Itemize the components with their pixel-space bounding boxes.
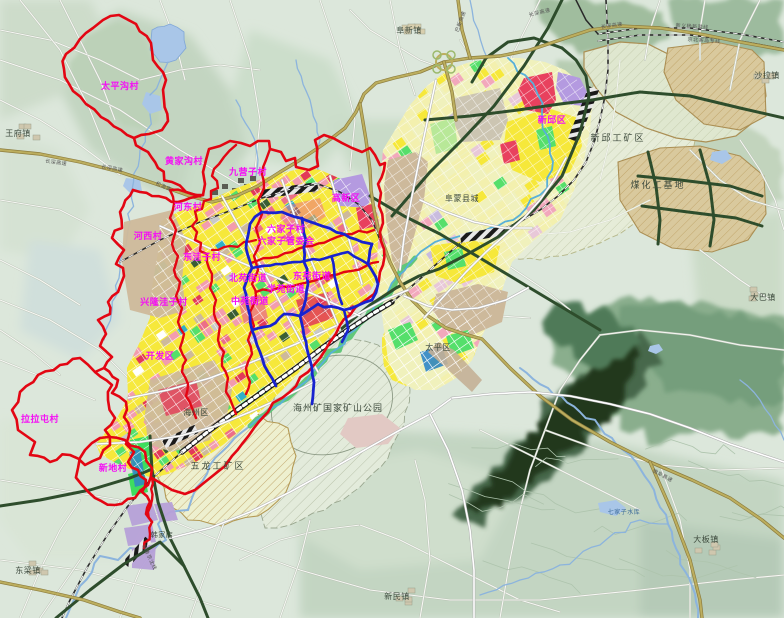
svg-text:开发区: 开发区 <box>146 350 175 361</box>
svg-text:高新区: 高新区 <box>332 192 361 203</box>
svg-text:五龙工矿区: 五龙工矿区 <box>190 460 245 471</box>
svg-text:东梁镇: 东梁镇 <box>15 565 41 575</box>
svg-text:大巴镇: 大巴镇 <box>750 292 776 302</box>
svg-text:新邱工矿区: 新邱工矿区 <box>590 132 645 143</box>
svg-text:新邱区: 新邱区 <box>538 114 567 125</box>
svg-text:东苑街道: 东苑街道 <box>293 270 331 281</box>
svg-text:新地村: 新地村 <box>99 462 128 473</box>
svg-text:河西村: 河西村 <box>134 230 163 241</box>
svg-text:海州矿国家矿山公园: 海州矿国家矿山公园 <box>293 402 383 413</box>
svg-text:六家子村: 六家子村 <box>267 223 305 234</box>
svg-text:河东村: 河东村 <box>174 201 203 212</box>
svg-text:拉拉屯村: 拉拉屯村 <box>21 413 59 424</box>
svg-text:六家子管委会: 六家子管委会 <box>257 235 315 246</box>
svg-text:太平沟村: 太平沟村 <box>100 80 139 91</box>
svg-text:阜新镇: 阜新镇 <box>396 25 422 35</box>
svg-text:兴隆洼子村: 兴隆洼子村 <box>140 296 188 307</box>
svg-text:黄家沟村: 黄家沟村 <box>165 155 203 166</box>
svg-text:王府镇: 王府镇 <box>5 128 31 138</box>
svg-text:东洼子村: 东洼子村 <box>183 251 221 262</box>
svg-text:沙拉镇: 沙拉镇 <box>754 70 780 80</box>
svg-text:北苑街道: 北苑街道 <box>229 272 267 283</box>
svg-text:中苑街道: 中苑街道 <box>231 295 269 306</box>
svg-text:阜蒙县城: 阜蒙县城 <box>445 193 479 203</box>
svg-text:九营子村: 九营子村 <box>228 166 267 177</box>
svg-text:大板镇: 大板镇 <box>693 534 719 544</box>
svg-text:新民镇: 新民镇 <box>384 591 410 601</box>
svg-text:学苑街道: 学苑街道 <box>267 283 305 294</box>
svg-text:太平区: 太平区 <box>425 342 451 352</box>
svg-text:七家子水库: 七家子水库 <box>608 508 641 516</box>
svg-text:煤化工基地: 煤化工基地 <box>630 179 685 190</box>
svg-text:海州区: 海州区 <box>183 407 209 417</box>
svg-text:韩家店: 韩家店 <box>151 530 174 539</box>
